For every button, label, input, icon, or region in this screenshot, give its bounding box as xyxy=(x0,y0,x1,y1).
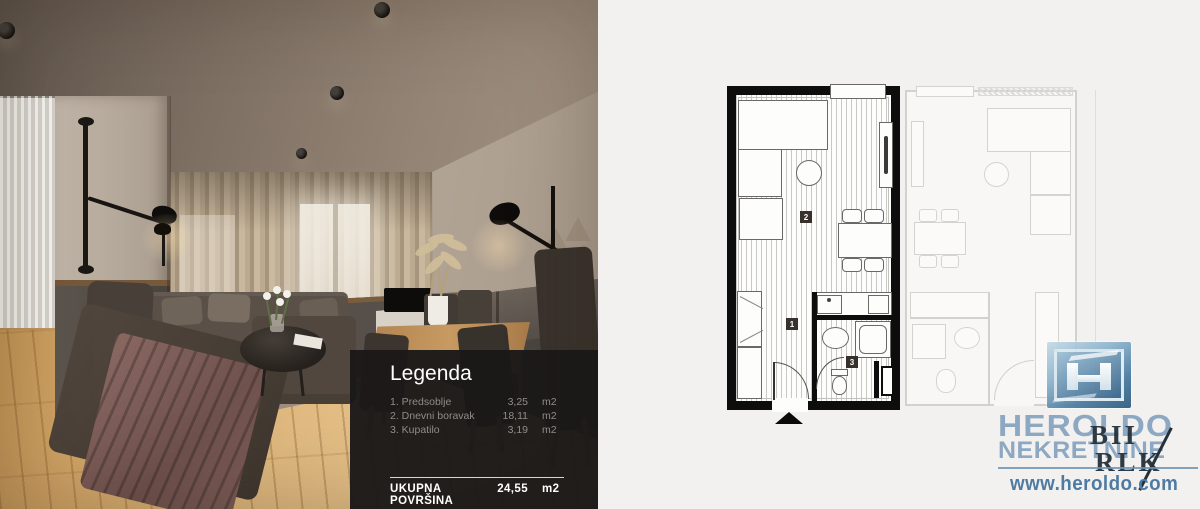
heroldo-logo xyxy=(1047,342,1131,408)
plan-wardrobe xyxy=(737,291,762,347)
room-marker-bathroom: 3 xyxy=(846,356,858,368)
neighbor-toilet xyxy=(936,369,956,393)
neighbor-washbasin xyxy=(954,327,980,349)
window-symbol xyxy=(830,84,886,99)
legend-title: Legenda xyxy=(390,362,472,386)
room-label: 2. Dnevni boravak xyxy=(390,410,486,423)
legend-panel: Legenda 1. Predsoblje 3,25 m2 2. Dnevni … xyxy=(350,350,598,509)
legend-total-row: UKUPNA POVRŠINA 24,55 m2 xyxy=(390,483,562,507)
plan-appliance xyxy=(868,295,889,314)
neighbor-bath-wall xyxy=(988,292,990,404)
plan-side-table xyxy=(739,198,783,240)
neighbor-hatched-wall xyxy=(978,87,1073,96)
plan-chair xyxy=(864,258,884,272)
room-unit: m2 xyxy=(542,410,562,423)
neighbor-bath-wall xyxy=(910,317,990,319)
room-label: 3. Kupatilo xyxy=(390,424,486,437)
plan-bath-wall xyxy=(812,292,817,410)
logo-h-icon xyxy=(1067,363,1078,389)
logo-h-icon xyxy=(1078,375,1100,382)
website-url: www.heroldo.com xyxy=(1010,473,1178,496)
neighbor-counter xyxy=(910,292,989,318)
total-value: 24,55 xyxy=(486,483,528,495)
total-unit: m2 xyxy=(542,483,562,495)
legend-row: 1. Predsoblje 3,25 m2 xyxy=(390,396,562,410)
room-area: 3,19 xyxy=(486,424,528,437)
entrance-opening xyxy=(772,398,808,412)
plan-washbasin xyxy=(822,327,849,349)
room-marker-hallway: 1 xyxy=(786,318,798,330)
plan-wardrobe xyxy=(737,347,762,399)
neighbor-dining-table xyxy=(914,222,966,255)
neighbor-shower xyxy=(912,324,946,359)
plan-faucet xyxy=(827,298,831,302)
entrance-door-leaf xyxy=(773,362,775,400)
legend-row: 3. Kupatilo 3,19 m2 xyxy=(390,424,562,438)
plan-sofa-left xyxy=(738,149,782,197)
legend-divider xyxy=(390,477,564,478)
plan-tv xyxy=(884,136,888,174)
legend-row: 2. Dnevni boravak 18,11 m2 xyxy=(390,410,562,424)
plan-dining-table xyxy=(838,223,892,258)
plan-bath-wall xyxy=(812,315,892,320)
floor-plan-pane: 1 2 3 xyxy=(598,0,1200,509)
legend-rows: 1. Predsoblje 3,25 m2 2. Dnevni boravak … xyxy=(390,396,562,438)
plan-sofa-top xyxy=(738,100,828,150)
brand-divider xyxy=(998,467,1198,469)
plan-niche xyxy=(881,366,894,396)
entrance-arrow-icon xyxy=(775,412,803,424)
plan-chair xyxy=(842,209,862,223)
neighbor-chair xyxy=(941,255,959,268)
plan-coffee-table xyxy=(796,160,822,186)
room-marker-living: 2 xyxy=(800,211,812,223)
neighbor-chair xyxy=(919,255,937,268)
plan-shower-tray xyxy=(859,325,887,354)
room-area: 3,25 xyxy=(486,396,528,409)
neighbor-window xyxy=(916,86,974,97)
plan-bath-wall xyxy=(874,361,879,398)
room-unit: m2 xyxy=(542,424,562,437)
neighbor-chair xyxy=(919,209,937,222)
neighbor-chair xyxy=(941,209,959,222)
neighbor-side-table xyxy=(1030,195,1071,235)
plan-chair xyxy=(842,258,862,272)
total-label: UKUPNA POVRŠINA xyxy=(390,483,486,507)
logo-h-icon xyxy=(1100,363,1111,389)
overlay-watermark-line1: BII xyxy=(1090,422,1138,449)
room-unit: m2 xyxy=(542,396,562,409)
plan-chair xyxy=(864,209,884,223)
neighbor-tv-cabinet xyxy=(911,121,924,187)
neighbor-coffee-table xyxy=(984,162,1009,187)
neighbor-sofa xyxy=(1030,151,1071,195)
room-label: 1. Predsoblje xyxy=(390,396,486,409)
neighbor-sofa xyxy=(987,108,1071,152)
room-area: 18,11 xyxy=(486,410,528,423)
real-estate-flyer: Legenda 1. Predsoblje 3,25 m2 2. Dnevni … xyxy=(0,0,1200,509)
